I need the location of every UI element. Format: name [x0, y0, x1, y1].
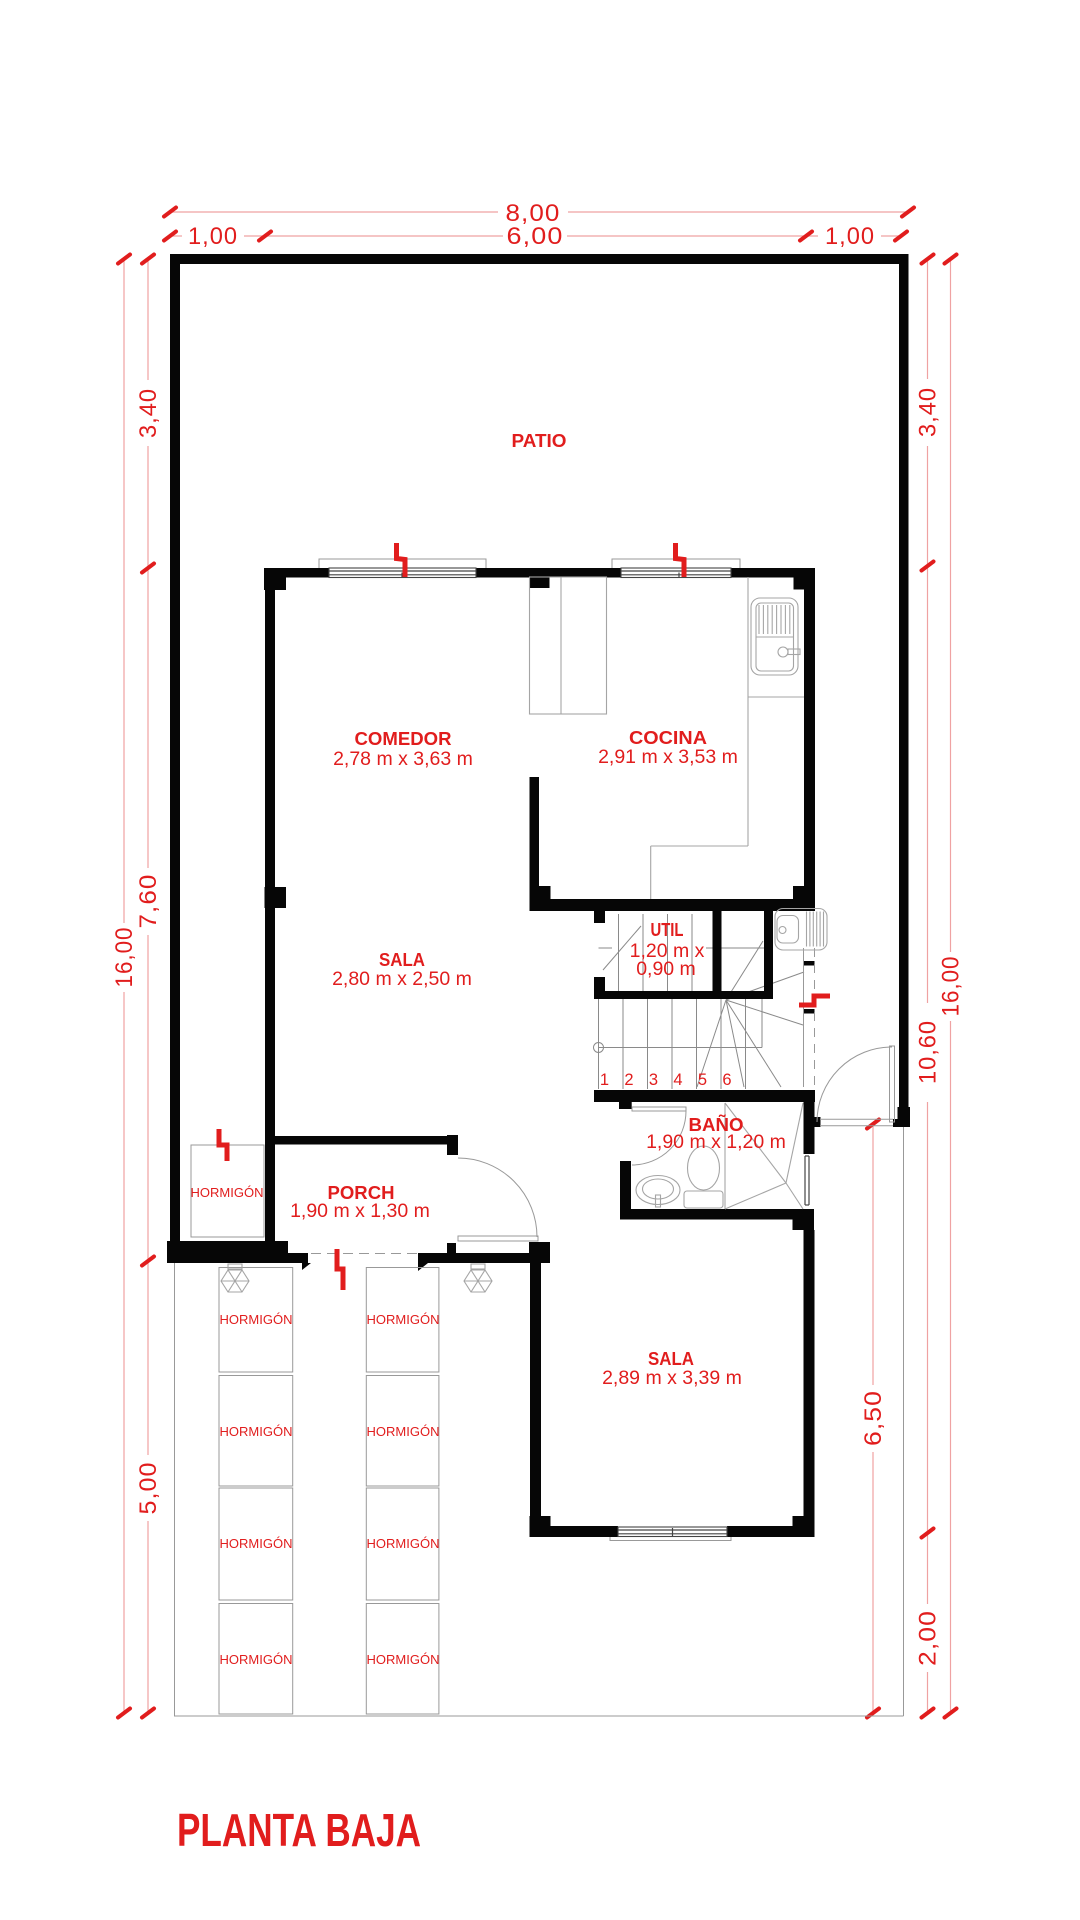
svg-text:HORMIGÓN: HORMIGÓN: [220, 1536, 293, 1551]
svg-text:16,00: 16,00: [938, 956, 965, 1017]
svg-text:3: 3: [649, 1071, 658, 1089]
svg-text:2,80 m x 2,50 m: 2,80 m x 2,50 m: [332, 968, 472, 990]
svg-text:5: 5: [698, 1071, 707, 1089]
svg-text:SALA: SALA: [648, 1348, 694, 1369]
svg-text:1,90 m x 1,20 m: 1,90 m x 1,20 m: [646, 1131, 786, 1153]
svg-text:UTIL: UTIL: [651, 919, 684, 940]
svg-text:2,78 m x 3,63 m: 2,78 m x 3,63 m: [333, 748, 473, 770]
svg-text:5,00: 5,00: [135, 1462, 162, 1515]
svg-text:2,00: 2,00: [915, 1610, 942, 1666]
svg-text:1: 1: [600, 1071, 609, 1089]
svg-text:HORMIGÓN: HORMIGÓN: [220, 1652, 293, 1667]
svg-text:HORMIGÓN: HORMIGÓN: [367, 1652, 440, 1667]
svg-text:6,50: 6,50: [860, 1390, 887, 1446]
svg-text:COCINA: COCINA: [629, 727, 707, 748]
svg-text:2: 2: [624, 1071, 633, 1089]
svg-text:10,60: 10,60: [915, 1020, 942, 1084]
svg-text:4: 4: [673, 1071, 682, 1089]
svg-text:COMEDOR: COMEDOR: [355, 728, 452, 749]
svg-text:HORMIGÓN: HORMIGÓN: [220, 1424, 293, 1439]
svg-text:16,00: 16,00: [111, 927, 138, 988]
svg-text:PATIO: PATIO: [512, 430, 567, 451]
svg-text:7,60: 7,60: [135, 874, 162, 929]
svg-text:6: 6: [722, 1071, 731, 1089]
svg-text:3,40: 3,40: [135, 388, 162, 438]
svg-text:HORMIGÓN: HORMIGÓN: [367, 1536, 440, 1551]
svg-text:2,89 m x 3,39 m: 2,89 m x 3,39 m: [602, 1367, 742, 1389]
svg-text:HORMIGÓN: HORMIGÓN: [191, 1185, 264, 1200]
svg-text:3,40: 3,40: [915, 387, 942, 437]
svg-text:1,00: 1,00: [188, 223, 238, 250]
svg-text:6,00: 6,00: [507, 223, 564, 250]
svg-text:2,91 m x 3,53 m: 2,91 m x 3,53 m: [598, 746, 738, 768]
svg-text:1,00: 1,00: [825, 223, 875, 250]
svg-text:1,90 m x 1,30 m: 1,90 m x 1,30 m: [290, 1200, 430, 1222]
svg-text:SALA: SALA: [379, 949, 425, 970]
svg-text:HORMIGÓN: HORMIGÓN: [367, 1424, 440, 1439]
svg-text:HORMIGÓN: HORMIGÓN: [220, 1312, 293, 1327]
svg-text:PLANTA BAJA: PLANTA BAJA: [177, 1804, 421, 1856]
svg-text:0,90 m: 0,90 m: [636, 958, 696, 980]
svg-text:HORMIGÓN: HORMIGÓN: [367, 1312, 440, 1327]
